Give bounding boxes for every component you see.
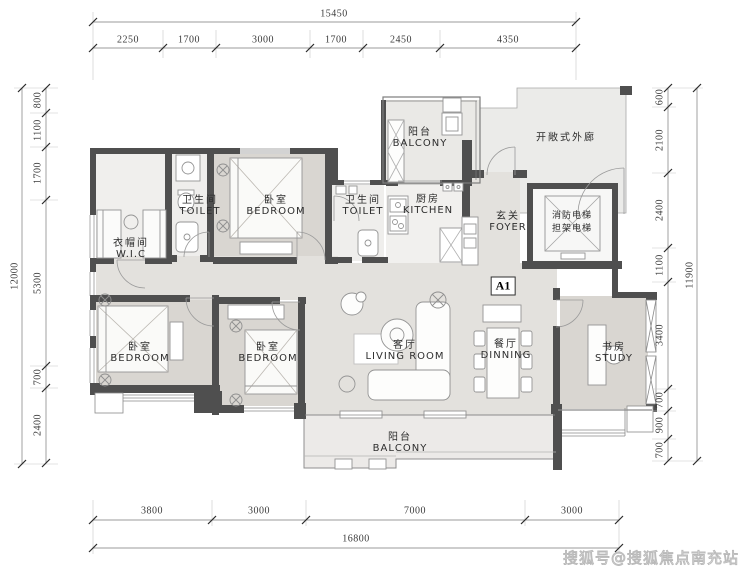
room-label-balcony-top: 阳台BALCONY xyxy=(393,123,448,149)
dim-right-seg: 3400 xyxy=(655,324,666,346)
dim-right-seg: 600 xyxy=(655,89,666,106)
dim-right-seg: 700 xyxy=(655,442,666,459)
floor-plan-drawing xyxy=(0,0,740,571)
unit-badge: A1 xyxy=(491,277,516,296)
dim-right-seg: 2400 xyxy=(655,199,666,221)
dim-left-seg: 5300 xyxy=(33,272,44,294)
dim-top-seg: 4350 xyxy=(497,35,519,46)
dim-right-seg: 1100 xyxy=(655,254,666,276)
floor-plan-page: 15450 2250 1700 3000 1700 2450 4350 1200… xyxy=(0,0,740,571)
dim-bottom-seg: 3000 xyxy=(561,506,583,517)
room-label-wic: 衣帽间W.I.C xyxy=(113,234,149,260)
room-label-open-corridor: 开敞式外廊 xyxy=(536,129,596,144)
dim-bottom-total: 16800 xyxy=(342,534,370,545)
dim-bottom-seg: 3800 xyxy=(141,506,163,517)
dim-top-seg: 1700 xyxy=(178,35,200,46)
dim-left-seg: 1100 xyxy=(33,119,44,141)
dim-top-seg: 2450 xyxy=(390,35,412,46)
room-label-toilet-1: 卫生间TOILET xyxy=(180,191,221,217)
dim-top-seg: 3000 xyxy=(252,35,274,46)
room-label-elevator: 消防电梯担架电梯 xyxy=(552,208,592,234)
room-label-kitchen: 厨房KITCHEN xyxy=(403,190,453,216)
dim-left-seg: 2400 xyxy=(33,414,44,436)
room-label-bedroom-top: 卧室BEDROOM xyxy=(246,191,305,217)
dim-left-seg: 1700 xyxy=(33,162,44,184)
dim-right-total: 11900 xyxy=(685,261,696,288)
dim-left-total: 12000 xyxy=(10,262,21,290)
room-label-toilet-2: 卫生间TOILET xyxy=(343,191,384,217)
room-label-bedroom-mid: 卧室BEDROOM xyxy=(238,338,297,364)
dim-right-seg: 900 xyxy=(655,417,666,434)
dim-top-seg: 2250 xyxy=(117,35,139,46)
room-label-balcony-bottom: 阳台BALCONY xyxy=(373,428,428,454)
room-label-study: 书房STUDY xyxy=(595,338,633,364)
room-label-foyer: 玄关FOYER xyxy=(489,207,526,233)
dim-top-seg: 1700 xyxy=(325,35,347,46)
room-label-living-room: 客厅LIVING ROOM xyxy=(365,336,444,362)
dim-left-seg: 800 xyxy=(33,92,44,109)
room-label-bedroom-left: 卧室BEDROOM xyxy=(110,338,169,364)
dim-bottom-seg: 7000 xyxy=(404,506,426,517)
dim-right-seg: 2100 xyxy=(655,129,666,151)
watermark: 搜狐号@搜狐焦点南充站 xyxy=(563,547,739,568)
dim-top-total: 15450 xyxy=(320,9,348,20)
bedroom-left-bay-window xyxy=(95,393,123,413)
room-label-dining-room: 餐厅DINNING xyxy=(481,335,532,361)
dim-right-seg: 700 xyxy=(655,392,666,409)
dim-left-seg: 700 xyxy=(33,369,44,386)
dim-bottom-seg: 3000 xyxy=(248,506,270,517)
